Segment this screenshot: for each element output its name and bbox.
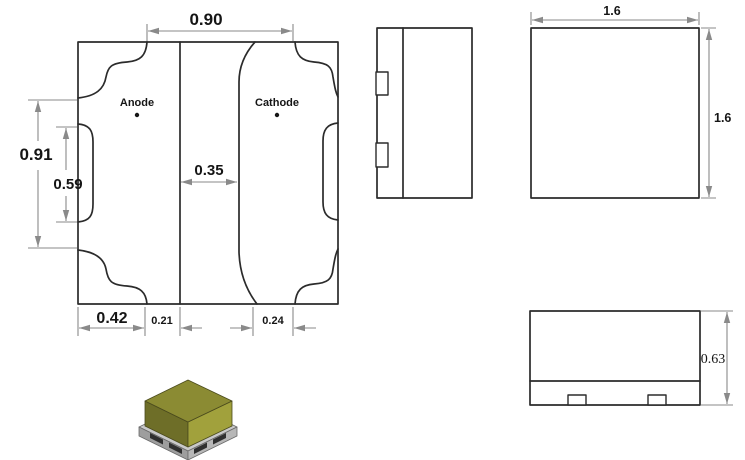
cathode-center-dot [275, 113, 279, 117]
dim-line-height-outer [28, 100, 77, 248]
arrow-icon [706, 186, 712, 197]
top-view [531, 28, 699, 198]
iso-3d-view [139, 380, 237, 460]
side-view-tab-top [376, 72, 388, 95]
arrow-icon [181, 325, 192, 331]
dim-center-gap-value: 0.35 [194, 162, 223, 179]
dim-pad-width-value: 0.42 [96, 310, 127, 327]
side-view [376, 28, 472, 198]
arrow-icon [181, 179, 192, 185]
left-edge-notch [78, 124, 93, 222]
dim-pad-span-value: 0.90 [189, 10, 222, 29]
dim-inset-right-value: 0.24 [262, 315, 284, 327]
dim-height-outer-value: 0.91 [19, 145, 52, 164]
arrow-icon [294, 325, 305, 331]
front-view-outline [530, 311, 700, 405]
cathode-pad-left-edge [239, 42, 257, 304]
arrow-icon [724, 312, 730, 323]
arrow-icon [35, 101, 41, 112]
front-view-terminal-right [648, 395, 666, 405]
dim-inset-left-value: 0.21 [151, 315, 172, 327]
anode-center-dot [135, 113, 139, 117]
arrow-icon [281, 28, 292, 34]
front-view [530, 311, 700, 405]
front-view-height-value: 0.63 [701, 352, 726, 367]
arrow-icon [63, 210, 69, 221]
drawing-svg: 0.90 0.91 0.59 0.35 0.42 0.21 0.24 1.6 1… [0, 0, 745, 460]
dim-line-notch-height [56, 127, 77, 222]
arrow-icon [79, 325, 90, 331]
anode-pad-bottom-curve [78, 250, 147, 304]
arrow-icon [148, 28, 159, 34]
cathode-pad-bottom-curve [295, 249, 338, 304]
arrow-icon [724, 393, 730, 404]
anode-label: Anode [120, 97, 154, 109]
top-view-outline [531, 28, 699, 198]
front-view-terminal-left [568, 395, 586, 405]
arrow-icon [706, 29, 712, 40]
cathode-pad-top-curve [295, 42, 338, 97]
arrow-icon [133, 325, 144, 331]
side-view-tab-bottom [376, 143, 388, 167]
arrow-icon [35, 236, 41, 247]
arrow-icon [63, 128, 69, 139]
dimension-drawing-sheet: 0.90 0.91 0.59 0.35 0.42 0.21 0.24 1.6 1… [0, 0, 745, 460]
cathode-label: Cathode [255, 97, 299, 109]
linework [78, 28, 700, 405]
dimension-lines [28, 12, 733, 405]
arrow-icon [241, 325, 252, 331]
top-view-width-value: 1.6 [603, 4, 620, 18]
anode-pad-top-curve [78, 42, 147, 98]
dimension-labels: 0.90 0.91 0.59 0.35 0.42 0.21 0.24 1.6 1… [19, 4, 731, 367]
side-view-outline [377, 28, 472, 198]
arrow-icon [687, 17, 698, 23]
top-view-height-value: 1.6 [714, 111, 731, 125]
arrow-icon [226, 179, 237, 185]
arrow-icon [532, 17, 543, 23]
pad-labels: Anode Cathode [120, 97, 299, 117]
right-edge-notch [323, 123, 338, 220]
dim-notch-height-value: 0.59 [53, 176, 82, 193]
